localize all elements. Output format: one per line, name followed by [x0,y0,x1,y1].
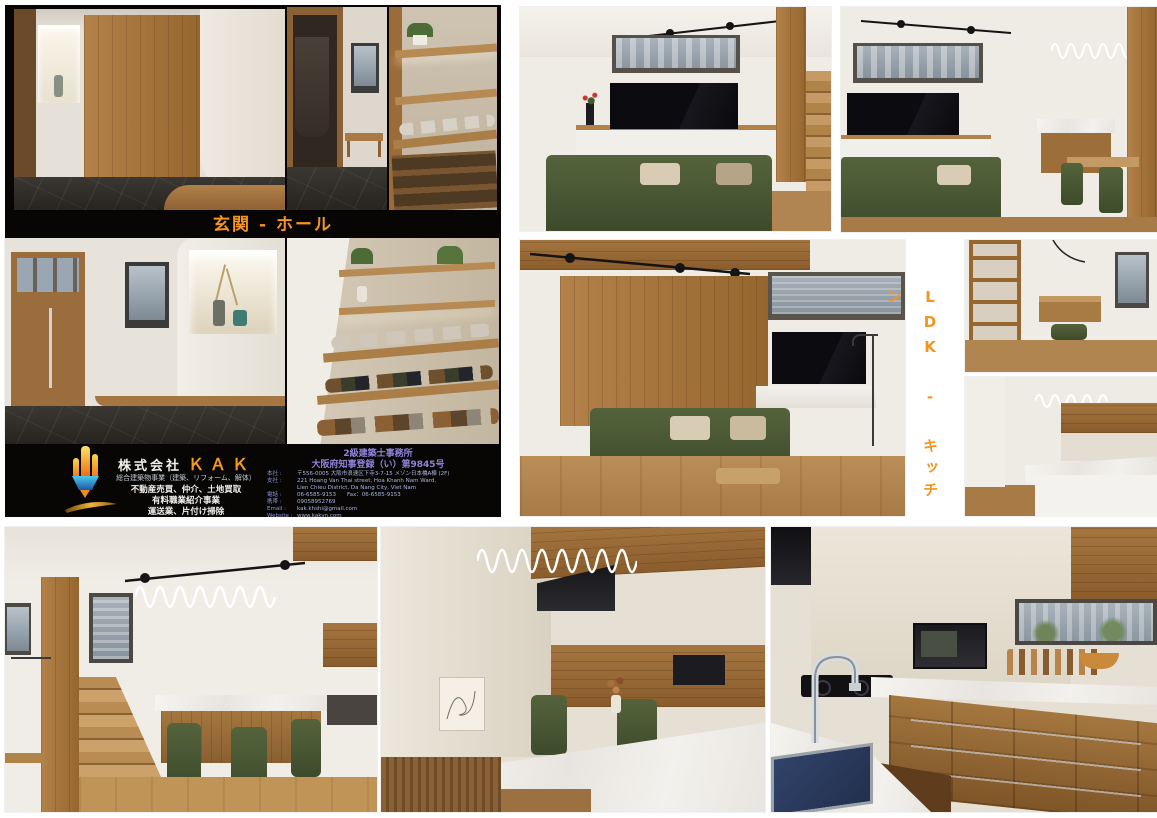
logo-flame-mid [81,446,90,476]
company-name-kak: ＫＡＫ [188,455,254,474]
wood-floor [965,485,1035,516]
shoe-cubby [392,150,497,210]
tv-screen [847,93,959,135]
media-cabinet [576,125,776,159]
faucet [797,645,867,745]
window-glass [857,46,979,78]
floor-lamp-arm [852,334,878,346]
wood-floor [965,340,1157,372]
genkan-hall-panel: 玄関 - ホール [5,5,501,517]
plant-1 [351,248,373,264]
planter [413,35,427,45]
wood-floor [520,456,905,516]
wood-plank-wall [560,276,768,426]
squiggle-pendant [1051,35,1135,63]
photo-living-wood-wall [520,240,905,516]
flower-vase [611,695,621,713]
shelf-2 [395,89,497,106]
plant-shelf [339,262,495,277]
presentation-board: 玄関 - ホール [0,0,1157,818]
shelf-1 [395,43,497,58]
floor-lamp [872,336,874,446]
door-glass [17,258,79,292]
sofa-cushion-2 [730,416,766,440]
dining-chair-2 [1099,167,1123,213]
sofa-cushion [670,416,710,440]
window-glass [616,38,736,68]
wood-floor [772,191,831,231]
bench-legs [347,141,381,157]
shelf-unit [969,240,1021,352]
shoes-row-2 [317,408,499,437]
line-art [443,681,479,725]
detail-row: 携帯 :09058952769 [267,499,501,506]
back-counter [551,645,765,707]
ldk-kitchen-caption: LDK - キッチン [912,288,948,524]
niche-vase [213,300,225,326]
coffee-table [716,468,780,484]
floor-cushion [1051,324,1087,340]
window-glass [93,597,129,659]
pendant-wire [1049,240,1089,270]
company-service-3: 運送業、片付け掃除 [93,505,279,517]
bench [345,133,383,141]
logo-pencil-tip [80,490,90,498]
sofa-cushion [640,163,680,185]
detail-row: 支社 :221 Hoang Van Thai street, Hoa Khanh… [267,478,501,485]
license-line-2: 大阪府知事登録（い）第9845号 [255,457,501,470]
side-cabinet [14,9,36,179]
niche-vase-2 [233,310,247,326]
sofa-cushion-2 [716,163,752,185]
tile-floor [5,406,285,444]
dining-chair-3 [291,719,321,777]
flower-vase [586,103,594,125]
stairs [806,71,831,191]
wood-floor [79,777,377,812]
small-window-left-glass [7,607,29,651]
company-name: 株式会社ＫＡＫ [101,451,271,475]
tv-screen [610,83,738,129]
photo-entrance-hall [14,9,285,210]
counter-right [327,695,377,725]
detail-row: 本社 :〒556-0005 大阪市浪速区下寺3-7-15 メゾン日本橋A棟 (2… [267,471,501,478]
island-slat-base [381,757,501,812]
microwave-window [921,631,957,657]
photo-living-tv-stairs [520,7,831,231]
sliding-door [84,15,200,191]
genkan-hall-caption: 玄関 - ホール [5,211,501,239]
floating-console [756,386,876,408]
window-glass [1019,603,1153,641]
sofa-cushion [937,165,971,185]
wood-floor [841,217,1157,232]
left-wall [965,377,1005,487]
detail-row: Lien Chieu District, Da Nang City, Viet … [267,485,501,492]
company-details: 本社 :〒556-0005 大阪市浪速区下寺3-7-15 メゾン日本橋A棟 (2… [267,471,501,520]
side-table [5,753,45,763]
company-name-prefix: 株式会社 [118,459,182,474]
photo-kitchen-sink [771,527,1157,812]
photo-dining-stairs [5,527,377,812]
upper-cabinet-right [1071,527,1157,601]
wood-baseboard [95,396,285,406]
tall-shelf [1127,7,1157,232]
reading-lamp [11,657,51,659]
upper-cabinet-right [323,623,377,667]
logo-flame-left [73,458,79,476]
wood-step [164,185,285,210]
wood-ceiling-corner [293,527,377,561]
window-glass [354,46,376,86]
island-body [1031,475,1157,516]
door-handle [49,308,52,388]
deco-vase [357,286,367,302]
tile-floor [287,167,387,210]
photo-ldk-overview [841,7,1157,232]
detail-row: Email :kak.khshi@gmail.com [267,506,501,513]
window-glass [1118,255,1146,303]
red-berries [578,91,602,105]
photo-kitchen-view [965,377,1157,516]
kitchen-island [1037,119,1115,133]
wood-floor [501,789,591,812]
photo-study-nook [965,240,1157,372]
deco-shelf [339,300,495,315]
dining-chair [531,695,567,755]
detail-row: 電話 :06-6585-9153 Fax：06-6585-9153 [267,492,501,499]
island-top [155,695,327,711]
photo-entrance-door [5,238,285,444]
vase [54,75,63,97]
hanging-coats [295,37,329,137]
track-light [861,13,1011,41]
curved-wall [200,9,285,194]
wood-column [41,577,79,812]
photo-shoe-shelf [389,7,497,210]
dining-chair [1061,163,1083,205]
detail-row: Website :www.kakvn.com [267,513,501,520]
stair-column [776,7,806,182]
squiggle-pendant [477,537,637,581]
upper-cabinet [1061,403,1157,433]
company-service-0: 総合建築物事業（建築、リフォーム、解体） [93,473,279,483]
stairs [79,677,161,777]
squiggle-pendant [135,575,285,615]
plant-2 [437,246,463,264]
photo-island-closeup [381,527,765,812]
hall-window-glass [129,266,165,320]
photo-coat-closet [287,7,387,210]
microwave [673,655,725,685]
low-table [1039,296,1101,322]
photo-shoe-rack [287,238,499,444]
